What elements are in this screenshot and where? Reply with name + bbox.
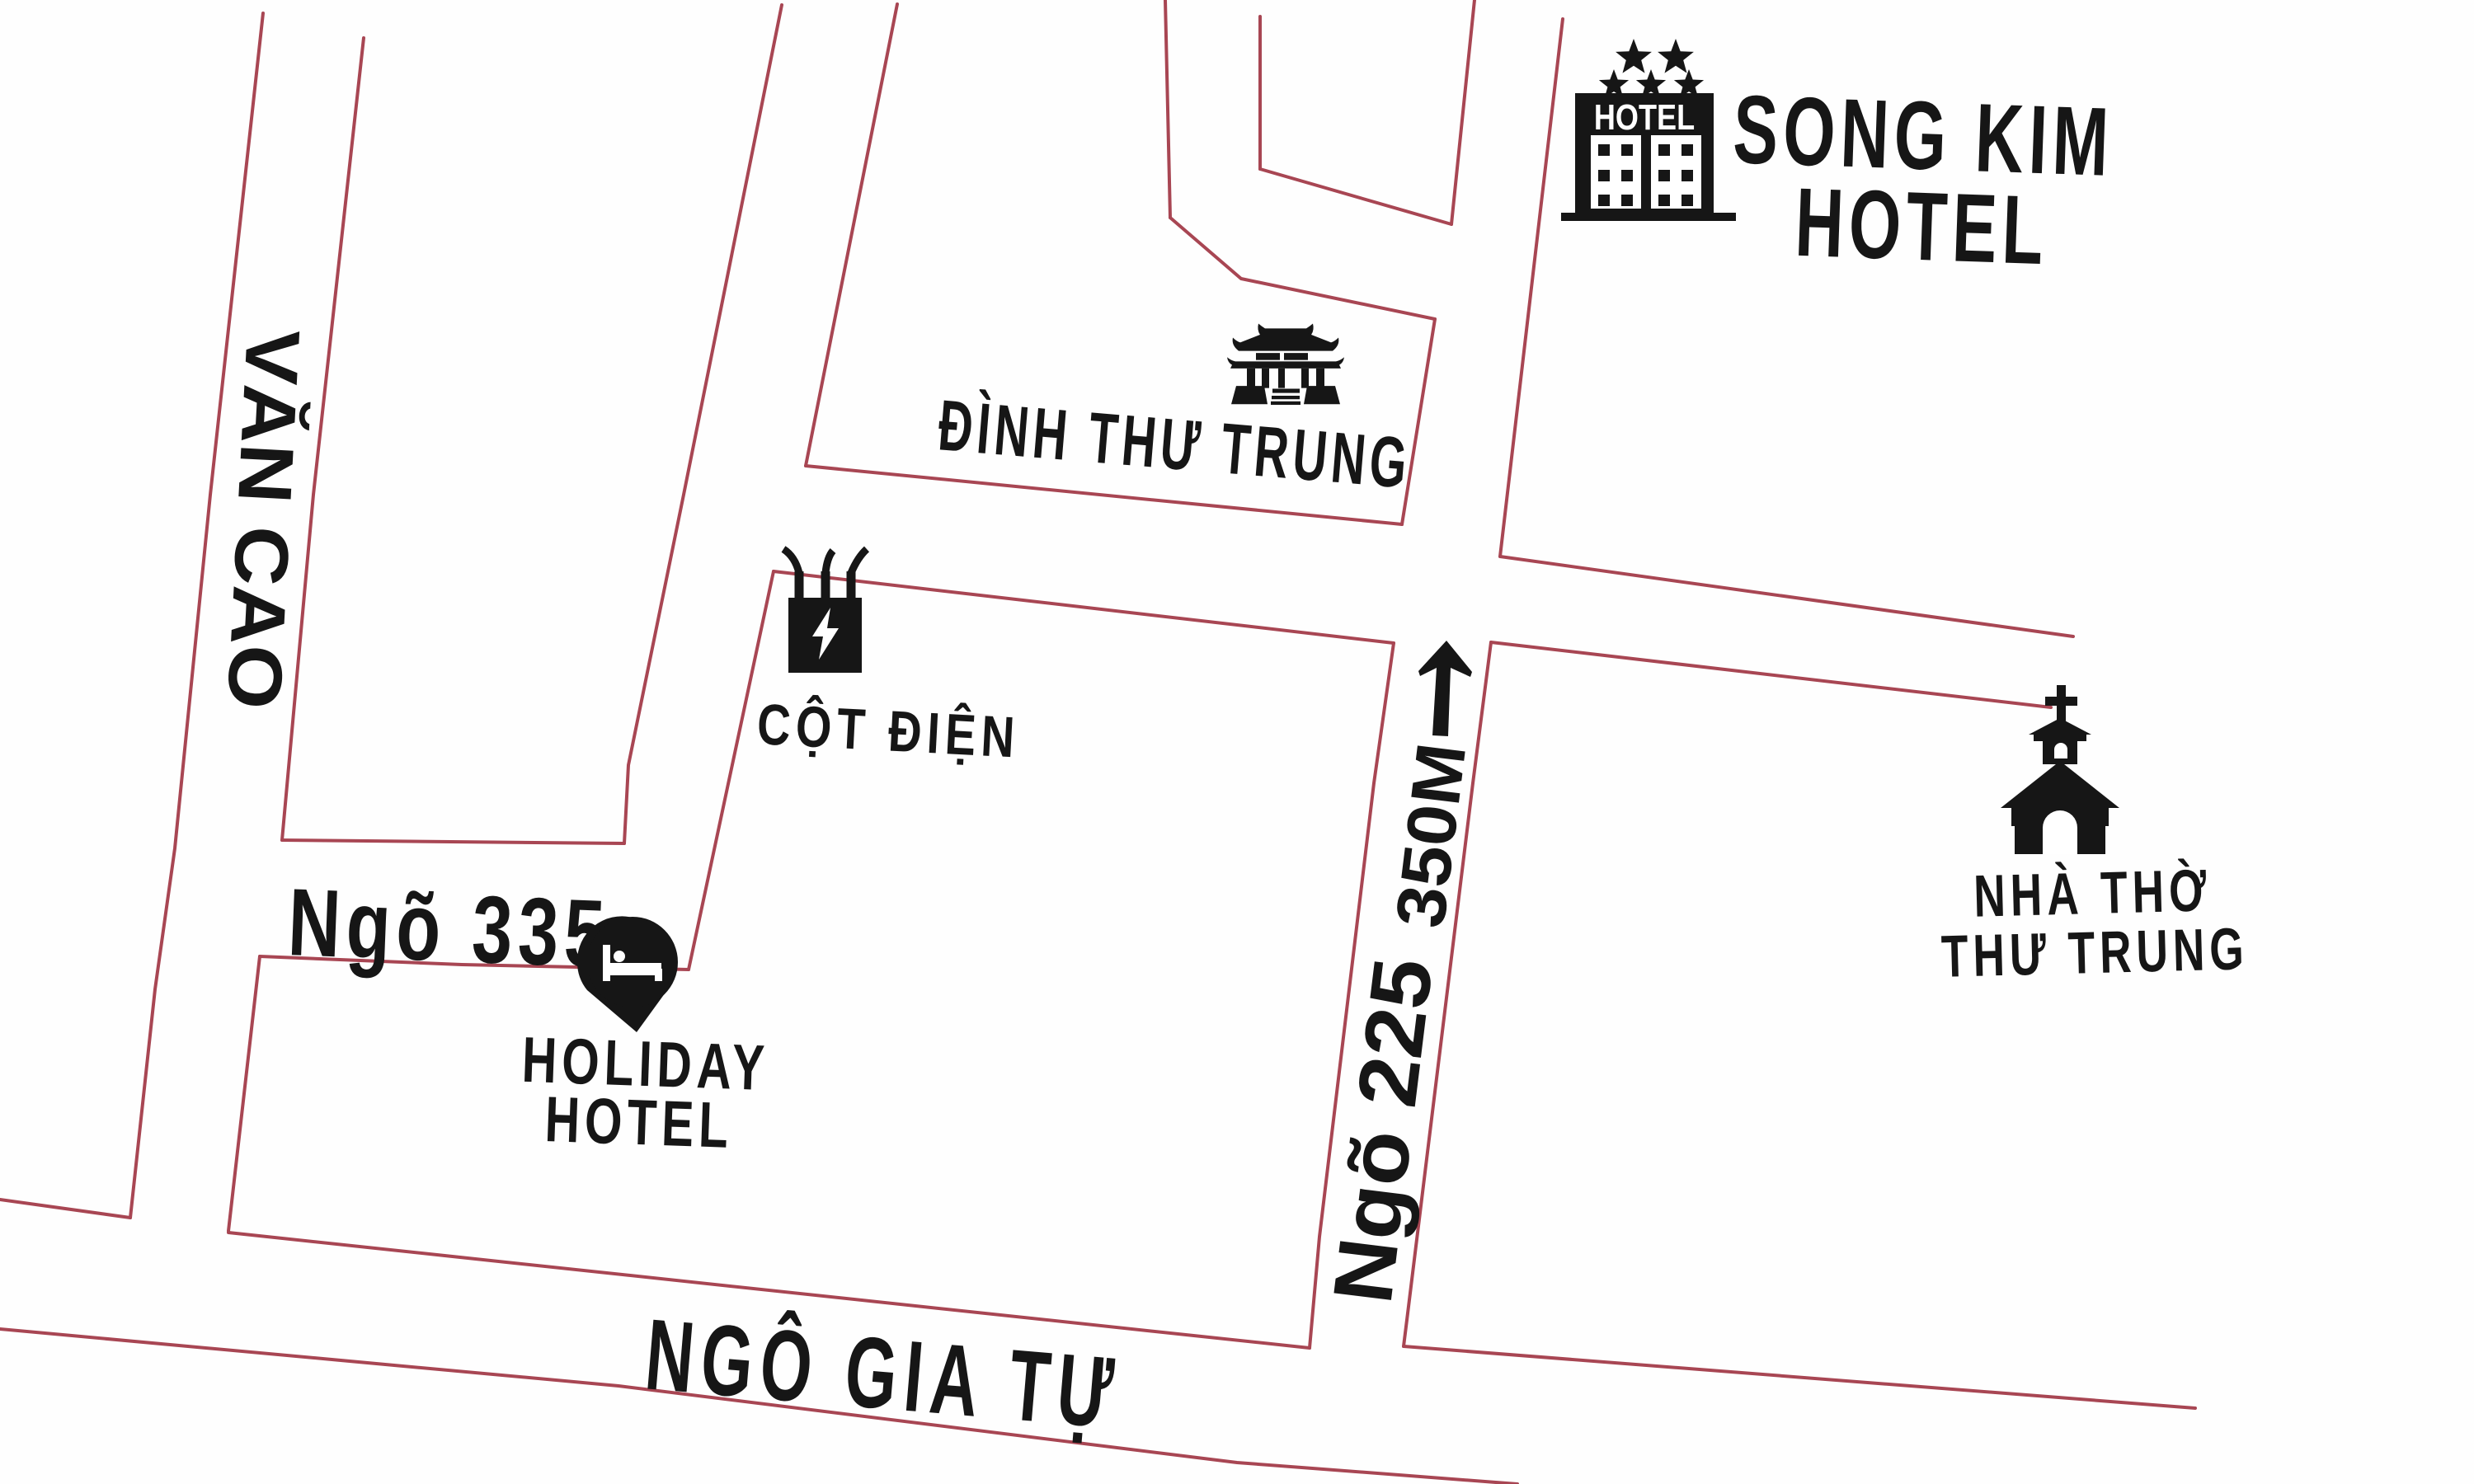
svg-text:HOTEL: HOTEL bbox=[543, 1083, 734, 1162]
svg-text:THƯ TRUNG: THƯ TRUNG bbox=[1940, 916, 2250, 989]
svg-text:HOTEL: HOTEL bbox=[1794, 168, 2050, 285]
svg-text:Ngõ 335: Ngõ 335 bbox=[286, 868, 612, 987]
svg-text:HOTEL: HOTEL bbox=[1594, 97, 1695, 138]
